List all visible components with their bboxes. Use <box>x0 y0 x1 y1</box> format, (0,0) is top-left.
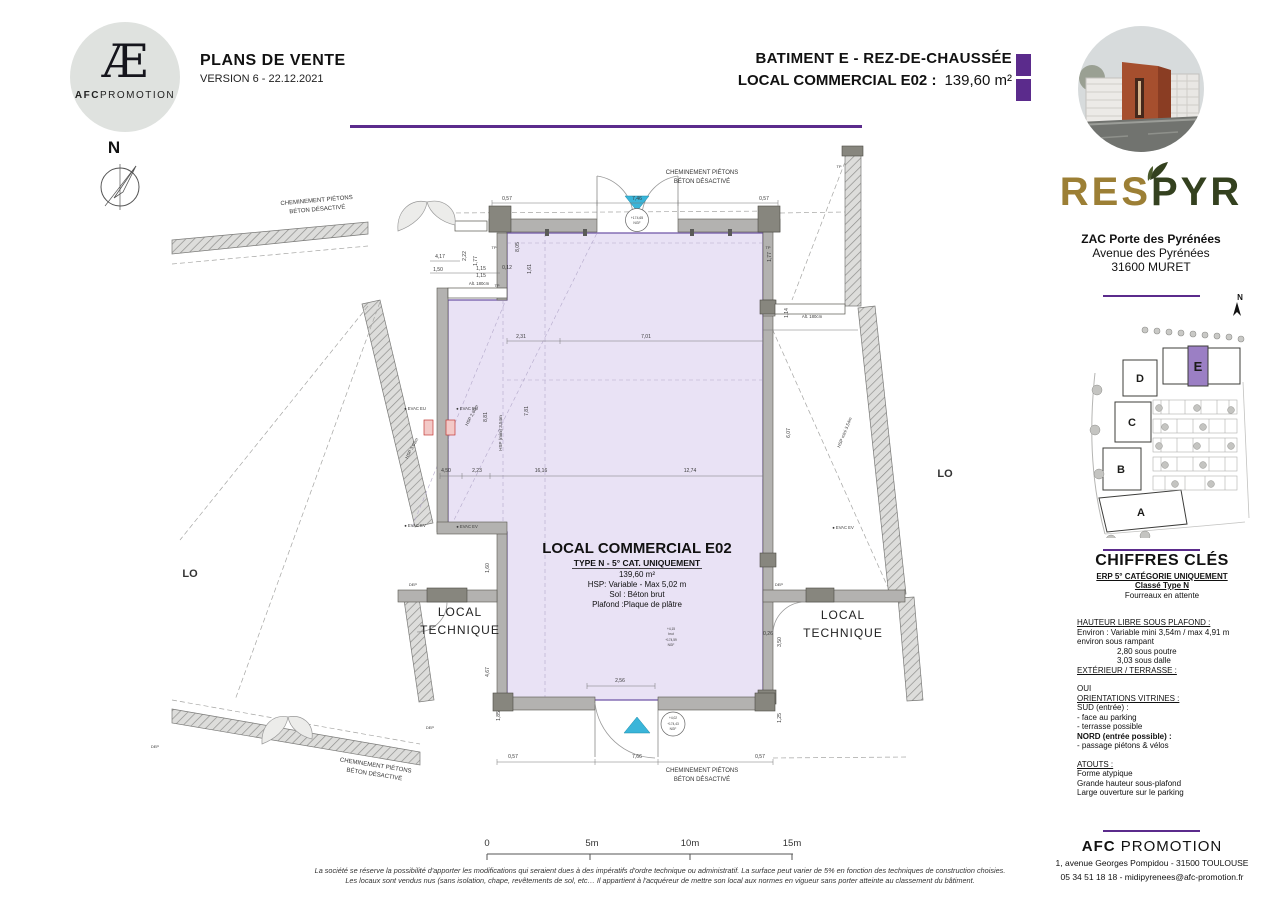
siteplan-label-a: A <box>1137 507 1145 519</box>
compass-icon <box>92 158 152 216</box>
dim-label: ● EVAC EV <box>832 525 854 530</box>
dim-label: TP <box>491 245 496 250</box>
north-compass: N <box>92 138 156 218</box>
atouts-title: ATOUTS : <box>1077 760 1264 770</box>
dim-label: 1,15 <box>476 266 486 272</box>
room-plafond: Plafond :Plaque de plâtre <box>592 600 682 609</box>
fourreaux-line: Fourreaux en attente <box>1060 591 1264 601</box>
address-line1: ZAC Porte des Pyrénées <box>1040 232 1262 246</box>
dim-label: DEP <box>409 582 418 587</box>
dim-label: 0,57 <box>508 754 518 760</box>
dim-label: 2,23 <box>472 468 482 474</box>
orientations-title: ORIENTATIONS VITRINES : <box>1077 694 1264 704</box>
siteplan-north-arrow-icon <box>1232 302 1242 318</box>
dim-label: +174,43 <box>667 722 679 726</box>
room-subtitle: TYPE N - 5° CAT. UNIQUEMENT <box>574 558 701 568</box>
dim-label: 8,05 <box>515 242 521 252</box>
afc-logo: Æ AFCPROMOTION <box>70 22 180 132</box>
local-title: LOCAL COMMERCIAL E02 :139,60 m² <box>738 72 1012 89</box>
siteplan-label-b: B <box>1117 464 1125 476</box>
hauteur-line2: environ sous rampant <box>1077 637 1264 647</box>
local-technique-right-2: TECHNIQUE <box>803 626 883 640</box>
orientation-line5: - passage piétons & vélos <box>1077 741 1264 751</box>
dim-label: TP <box>494 283 499 288</box>
chiffres-title: CHIFFRES CLÉS <box>1060 556 1264 566</box>
dim-label: 1,25 <box>777 713 783 723</box>
address-line3: 31600 MURET <box>1040 260 1262 274</box>
dim-label: 0,57 <box>755 754 765 760</box>
room-hsp: HSP: Variable - Max 5,02 m <box>588 580 687 589</box>
dim-label: NGF <box>668 643 675 647</box>
sidebar-rule-2 <box>1103 549 1200 551</box>
dim-label: Alt. 180cm <box>469 281 490 286</box>
dim-label: 8,81 <box>483 412 489 422</box>
atout-line2: Grande hauteur sous-plafond <box>1077 779 1264 789</box>
siteplan-label-e: E <box>1194 359 1203 374</box>
hauteur-line1: Environ : Variable mini 3,54m / max 4,91… <box>1077 628 1264 638</box>
dim-label: DEP <box>151 744 160 749</box>
dim-label: 16,16 <box>535 468 548 474</box>
floor-plan: LOCAL COMMERCIAL E02 TYPE N - 5° CAT. UN… <box>150 136 1050 808</box>
cheminement-top-1: CHEMINEMENT PIÉTONS <box>666 169 738 176</box>
dim-label: 1,60 <box>485 563 491 573</box>
project-logo: RES PYR <box>1040 172 1262 212</box>
orientation-line1: SUD (entrée) : <box>1077 703 1264 713</box>
siteplan-label-c: C <box>1128 417 1136 429</box>
dim-label: +4,02 <box>669 716 677 720</box>
leaf-icon <box>1144 160 1170 182</box>
local-technique-right-1: LOCAL <box>821 608 865 622</box>
dim-label: 2,31 <box>516 334 526 340</box>
project-logo-res: RES <box>1060 170 1151 214</box>
local-technique-left-2: TECHNIQUE <box>420 623 500 637</box>
dim-label: +174,65 <box>631 216 643 220</box>
dim-label: HSP mini 3,54m <box>836 416 853 448</box>
header-rule <box>350 125 862 128</box>
room-sol: Sol : Béton brut <box>609 590 665 599</box>
address-line2: Avenue des Pyrénées <box>1040 246 1262 260</box>
scale-5m: 5m <box>585 838 598 849</box>
doc-version: VERSION 6 - 22.12.2021 <box>200 73 324 85</box>
dim-label: ● EVAC EV <box>404 523 426 528</box>
dim-label: 0,12 <box>502 265 512 271</box>
scale-bar: 0 5m 10m 15m <box>478 834 808 864</box>
site-plan-art: D E C B A <box>1085 318 1257 538</box>
dim-label: 1,15 <box>476 273 486 279</box>
exterieur-title: EXTÉRIEUR / TERRASSE : <box>1077 666 1264 676</box>
dim-label: 4,17 <box>435 254 445 260</box>
afc-monogram-icon: Æ <box>70 38 180 84</box>
dim-label: 0,57 <box>502 196 512 202</box>
page: Æ AFCPROMOTION PLANS DE VENTE VERSION 6 … <box>0 0 1280 904</box>
dim-label: 1,77 <box>473 256 479 266</box>
dim-label: DEP <box>775 582 784 587</box>
sidebar-rule-3 <box>1103 830 1200 832</box>
orientation-line3: - terrasse possible <box>1077 722 1264 732</box>
scale-0: 0 <box>484 838 489 849</box>
dim-label: 1,14 <box>784 308 790 318</box>
dim-label: NGF <box>633 221 640 225</box>
room-title: LOCAL COMMERCIAL E02 <box>542 540 731 557</box>
sidebar-rule-1 <box>1103 295 1200 297</box>
north-label: N <box>94 138 134 158</box>
building-photo <box>1078 26 1204 152</box>
floor-plan-art: LOCAL COMMERCIAL E02 TYPE N - 5° CAT. UN… <box>150 136 1050 808</box>
scale-15m: 15m <box>783 838 802 849</box>
dim-label: 12,74 <box>684 468 697 474</box>
dim-label: +174,59 <box>665 638 677 642</box>
local-area: 139,60 m² <box>944 72 1012 89</box>
dim-label: 3,50 <box>777 637 783 647</box>
dim-label: 4,67 <box>485 667 491 677</box>
dim-label: 1,61 <box>527 264 533 274</box>
dim-label: NGF <box>670 727 677 731</box>
hauteur-line4: 3,03 sous dalle <box>1077 656 1264 666</box>
scale-10m: 10m <box>681 838 700 849</box>
footer-company: AFC PROMOTION <box>1040 838 1264 855</box>
dim-label: 1,50 <box>433 267 443 273</box>
dim-label: +4,15 <box>667 627 675 631</box>
dim-label: 7,01 <box>641 334 651 340</box>
dim-label: 1,77 <box>767 252 773 262</box>
dim-label: brut <box>668 632 674 636</box>
room-area: 139,60 m² <box>619 570 655 579</box>
cheminement-top-2: BÉTON DÉSACTIVÉ <box>674 178 730 185</box>
dim-label: DEP <box>426 725 435 730</box>
dim-label: 7,81 <box>524 406 530 416</box>
chiffres-cles: CHIFFRES CLÉS ERP 5° CATÉGORIE UNIQUEMEN… <box>1060 556 1264 798</box>
atout-line3: Large ouverture sur le parking <box>1077 788 1264 798</box>
exterieur-value: OUI <box>1077 684 1264 694</box>
hauteur-title: HAUTEUR LIBRE SOUS PLAFOND : <box>1077 618 1264 628</box>
dim-label: Alt. 180cm <box>802 314 823 319</box>
disclaimer: La société se réserve la possibilité d'a… <box>160 866 1160 886</box>
dim-label: 7,46 <box>632 196 642 202</box>
siteplan-label-d: D <box>1136 373 1144 385</box>
dim-label: 7,66 <box>632 754 642 760</box>
dim-label: 0,26 <box>763 631 773 637</box>
dim-label: 4,50 <box>441 468 451 474</box>
adjacent-local-left: LO <box>182 568 198 580</box>
dim-label: ● EVAC EV <box>456 524 478 529</box>
plan-header: BATIMENT E - REZ-DE-CHAUSSÉE LOCAL COMME… <box>738 50 1012 89</box>
building-photo-art <box>1078 26 1204 152</box>
atout-line1: Forme atypique <box>1077 769 1264 779</box>
dim-label: TP <box>765 245 770 250</box>
dim-label: TP <box>836 164 841 169</box>
siteplan-north: N <box>1232 293 1248 318</box>
orientation-line4: NORD (entrée possible) : <box>1077 732 1264 742</box>
dim-label: 2,56 <box>615 678 625 684</box>
hauteur-line3: 2,80 sous poutre <box>1077 647 1264 657</box>
dim-label: HSP (mini) 3,54m <box>498 415 503 451</box>
doc-title: PLANS DE VENTE <box>200 52 346 70</box>
orientation-line2: - face au parking <box>1077 713 1264 723</box>
building-title: BATIMENT E - REZ-DE-CHAUSSÉE <box>738 50 1012 67</box>
local-technique-left-1: LOCAL <box>438 605 482 619</box>
erp-line: ERP 5° CATÉGORIE UNIQUEMENT <box>1060 572 1264 582</box>
cheminement-bottom-1: CHEMINEMENT PIÉTONS <box>666 767 738 774</box>
dim-label: ● EVAC EU <box>404 406 426 411</box>
project-address: ZAC Porte des Pyrénées Avenue des Pyréné… <box>1040 232 1262 274</box>
dim-label: 2,22 <box>462 251 468 261</box>
adjacent-local-right: LO <box>937 468 953 480</box>
scale-bar-art: 0 5m 10m 15m <box>478 834 808 864</box>
dim-label: 1,85 <box>496 711 502 721</box>
afc-logo-text: AFCPROMOTION <box>70 90 180 101</box>
site-plan: D E C B A <box>1085 318 1257 538</box>
disclaimer-line1: La société se réserve la possibilité d'a… <box>160 866 1160 876</box>
dim-label: 6,07 <box>786 428 792 438</box>
cheminement-bottom-2: BÉTON DÉSACTIVÉ <box>674 776 730 783</box>
accent-block-2 <box>1016 79 1031 101</box>
accent-block-1 <box>1016 54 1031 76</box>
dim-label: 0,57 <box>759 196 769 202</box>
disclaimer-line2: Les locaux sont vendus nus (sans isolati… <box>160 876 1160 886</box>
classe-line: Classé Type N <box>1060 581 1264 591</box>
